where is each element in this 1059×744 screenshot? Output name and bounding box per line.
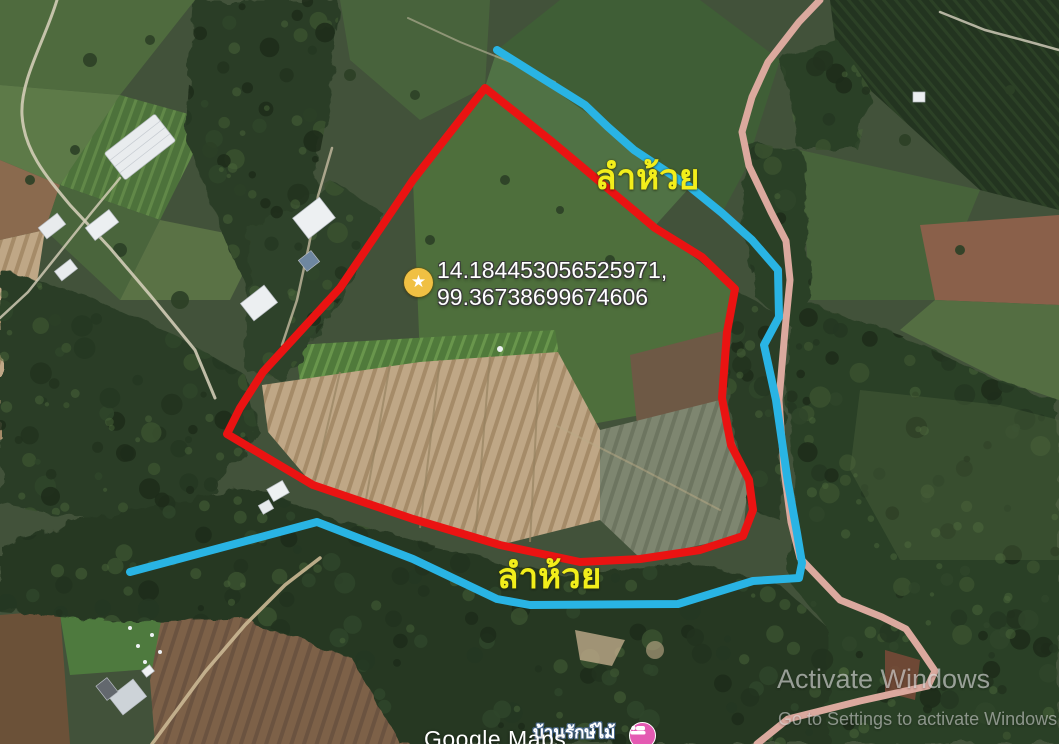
lodging-icon[interactable] xyxy=(629,722,656,744)
coordinate-lng: 99.36738699674606 xyxy=(437,284,667,311)
star-marker-icon[interactable]: ★ xyxy=(404,268,433,297)
google-maps-logo[interactable]: Google Maps xyxy=(424,726,566,744)
satellite-terrain xyxy=(0,0,1059,744)
map-canvas[interactable]: ลำห้วย ลำห้วย ★ 14.184453056525971, 99.3… xyxy=(0,0,1059,744)
marker-coordinates: 14.184453056525971, 99.36738699674606 xyxy=(437,257,667,311)
coordinate-lat: 14.184453056525971, xyxy=(437,257,667,284)
